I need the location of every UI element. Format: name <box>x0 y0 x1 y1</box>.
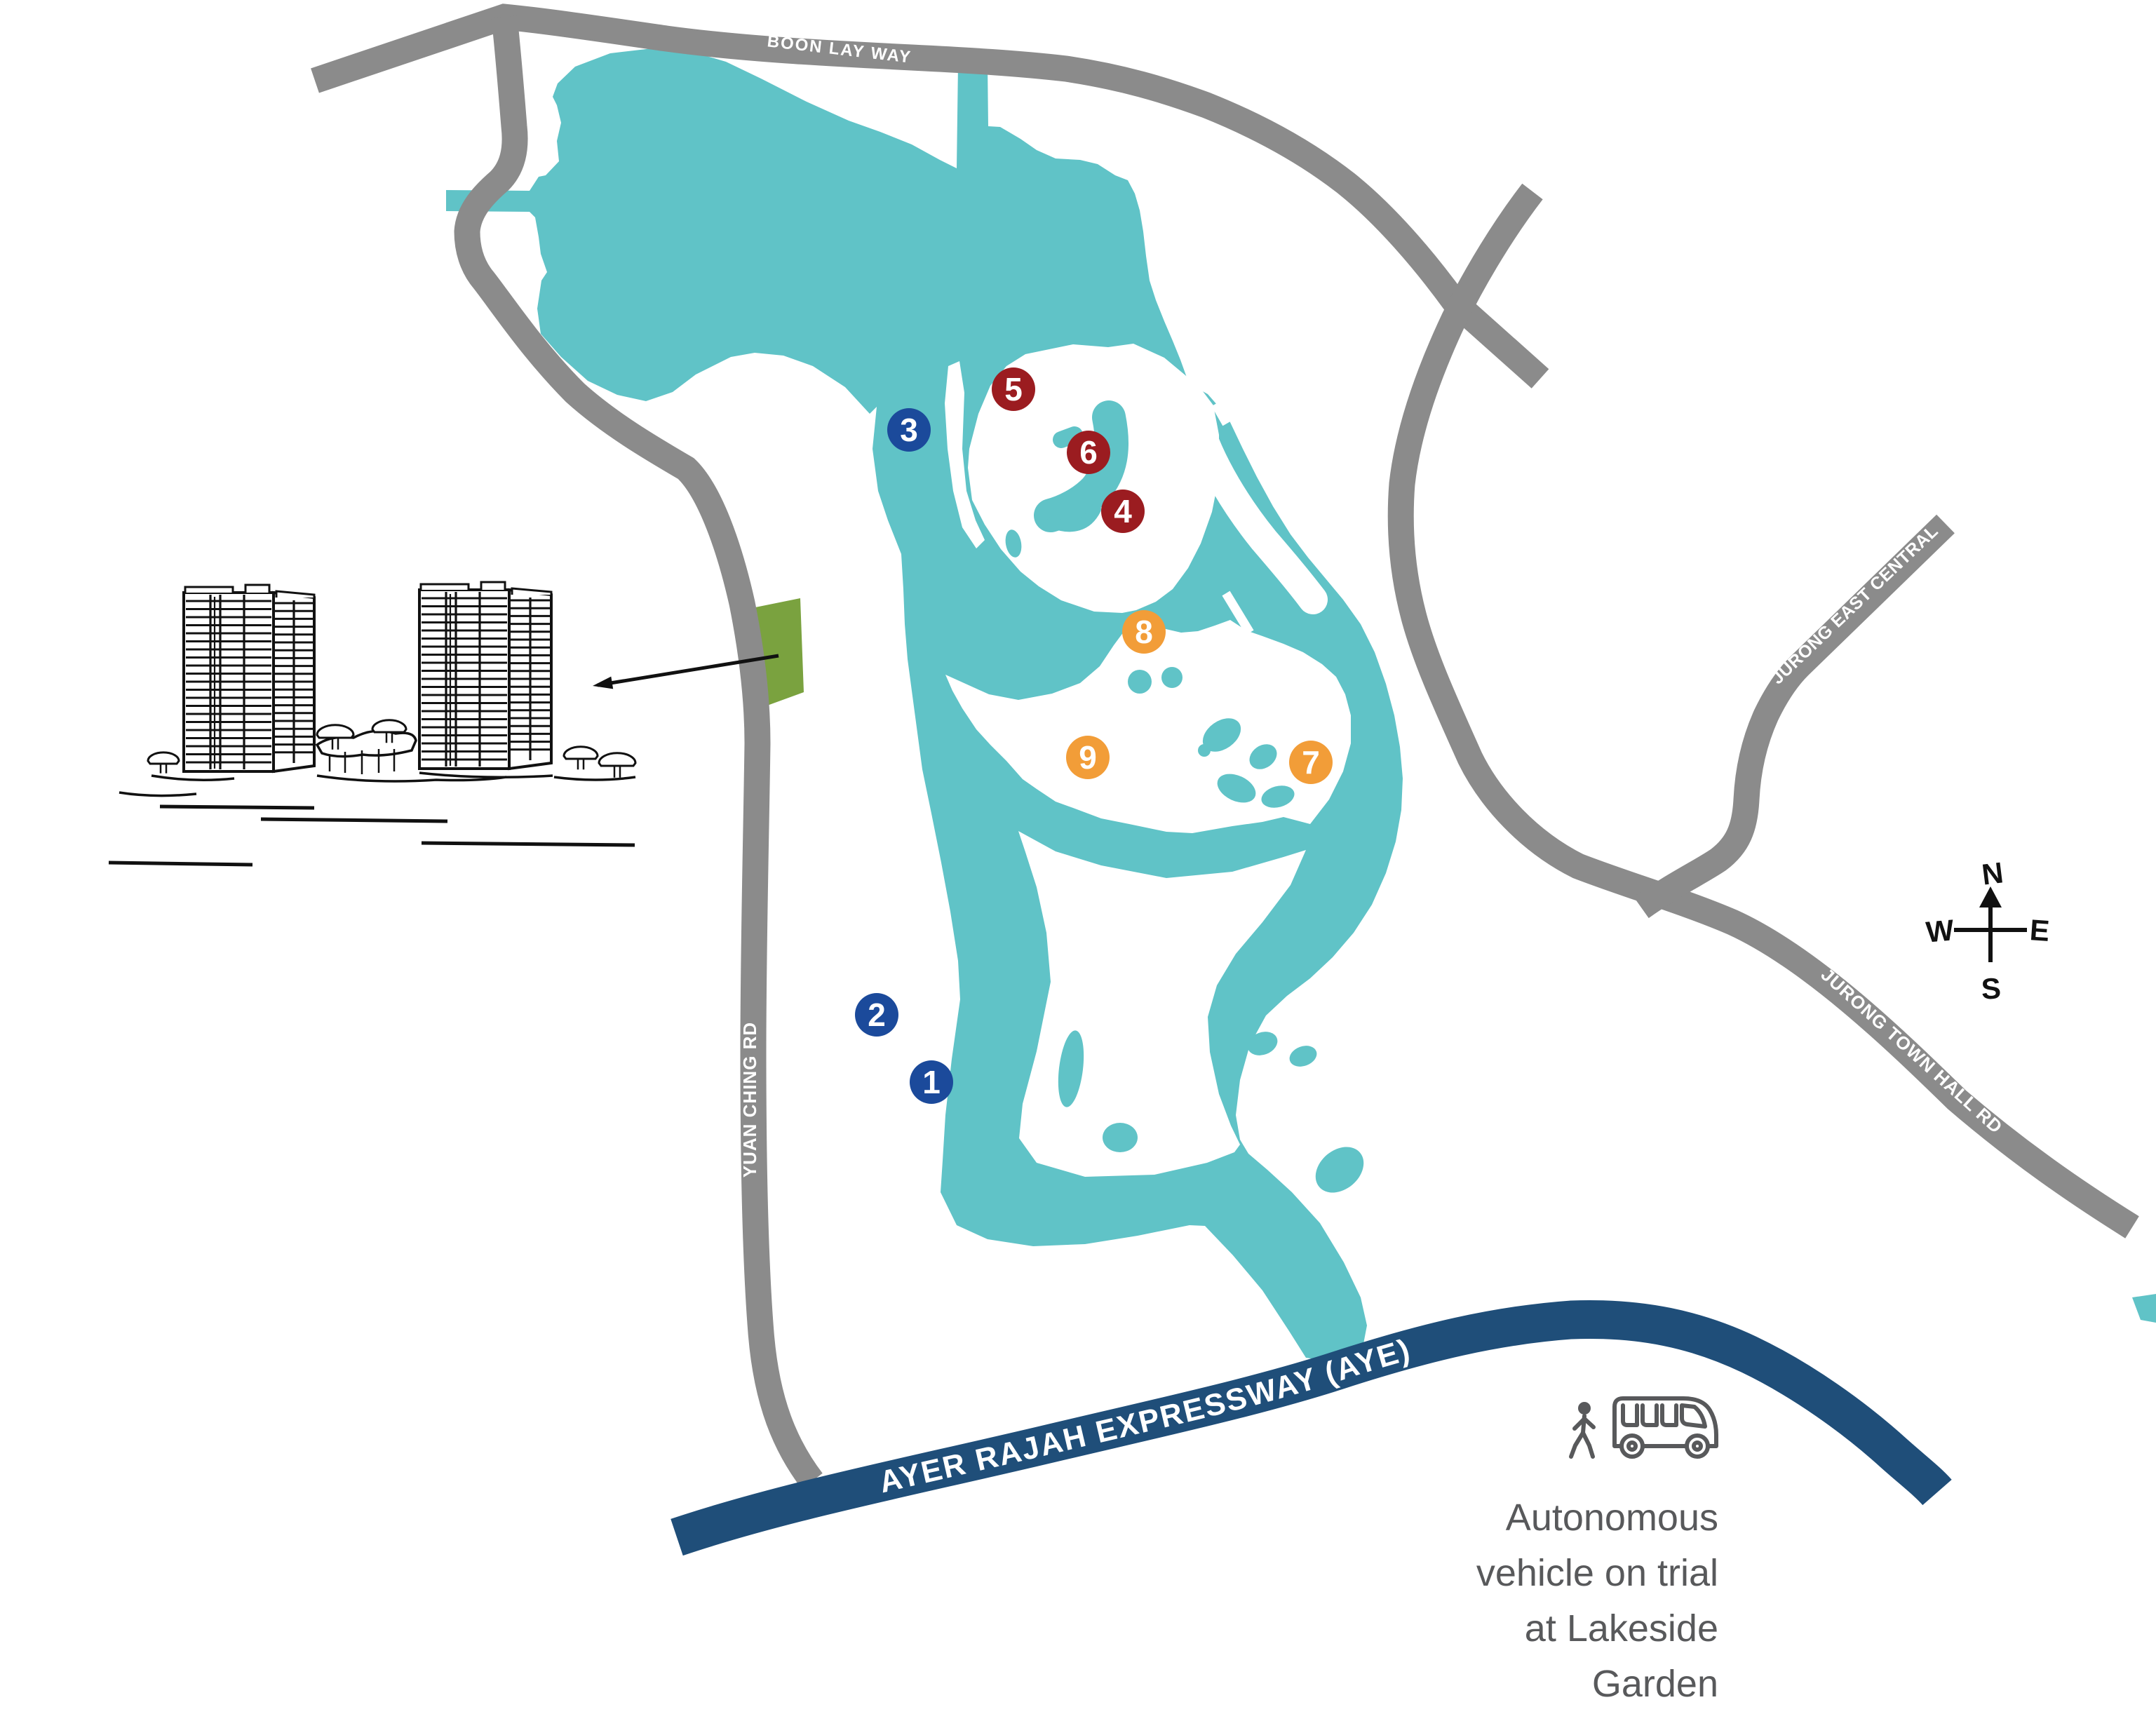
svg-text:2: 2 <box>868 997 886 1033</box>
svg-text:7: 7 <box>1302 744 1320 781</box>
svg-text:YUAN CHING RD: YUAN CHING RD <box>739 1022 760 1177</box>
svg-text:5: 5 <box>1004 371 1023 407</box>
svg-text:9: 9 <box>1079 739 1097 776</box>
svg-text:8: 8 <box>1135 614 1153 650</box>
svg-text:at Lakeside: at Lakeside <box>1525 1607 1718 1649</box>
svg-text:4: 4 <box>1114 493 1132 529</box>
svg-text:Autonomous: Autonomous <box>1506 1497 1718 1539</box>
svg-text:W: W <box>1925 913 1955 948</box>
svg-text:S: S <box>1981 971 2002 1005</box>
svg-text:E: E <box>2028 913 2050 947</box>
svg-text:6: 6 <box>1079 434 1098 471</box>
svg-text:Garden: Garden <box>1592 1663 1718 1705</box>
svg-text:1: 1 <box>922 1064 941 1100</box>
svg-text:N: N <box>1980 856 2005 891</box>
svg-text:vehicle on trial: vehicle on trial <box>1476 1552 1718 1594</box>
svg-text:3: 3 <box>900 412 918 448</box>
